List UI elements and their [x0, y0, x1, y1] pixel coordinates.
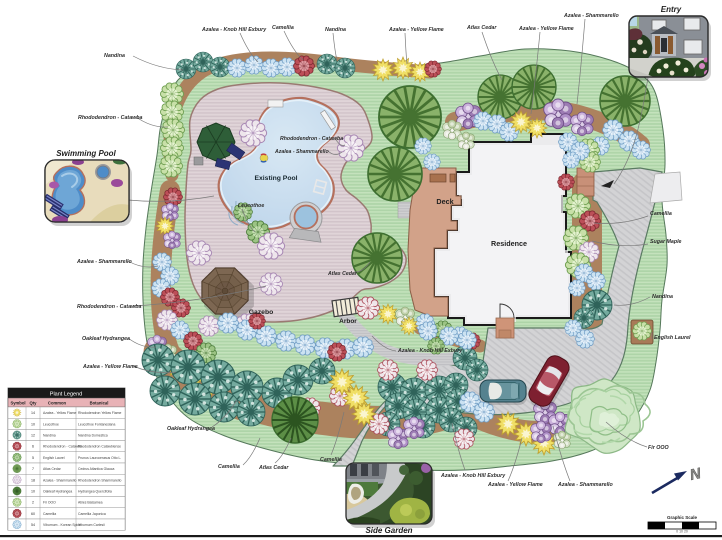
svg-text:Prunus Laurocerasus Otto L.: Prunus Laurocerasus Otto L.: [78, 456, 121, 460]
svg-text:Azalea - Knob Hill Exbury: Azalea - Knob Hill Exbury: [201, 27, 267, 33]
svg-text:5: 5: [32, 456, 34, 460]
svg-text:Leucothoe: Leucothoe: [238, 203, 264, 209]
svg-text:Azalea - Knob Hill Exbury: Azalea - Knob Hill Exbury: [397, 348, 463, 354]
svg-text:Leucothoe Fontanesiana: Leucothoe Fontanesiana: [78, 422, 115, 426]
svg-text:Azalea - Yellow Flame: Azalea - Yellow Flame: [43, 411, 76, 415]
svg-text:Camellia: Camellia: [218, 464, 240, 470]
svg-text:Symbol: Symbol: [10, 401, 25, 406]
svg-text:18: 18: [31, 478, 35, 482]
svg-text:Leucothoe: Leucothoe: [43, 422, 59, 426]
svg-text:Hydrangea Quercifolia: Hydrangea Quercifolia: [78, 490, 112, 494]
svg-text:Graphic Scale: Graphic Scale: [667, 515, 698, 520]
svg-text:7: 7: [32, 467, 34, 471]
svg-text:Cedrus Atlantica Glauca: Cedrus Atlantica Glauca: [78, 467, 114, 471]
svg-text:Atlas Cedar: Atlas Cedar: [258, 465, 289, 471]
svg-text:60: 60: [31, 512, 35, 516]
svg-text:Viburnum Carlesii: Viburnum Carlesii: [78, 523, 105, 527]
svg-text:Abies Balsamea: Abies Balsamea: [78, 501, 103, 505]
svg-text:Plant Legend: Plant Legend: [50, 392, 82, 398]
svg-text:Nandina: Nandina: [104, 53, 125, 59]
svg-text:Azalea - Shammarello: Azalea - Shammarello: [274, 149, 329, 155]
svg-text:Azalea - Yellow Flame: Azalea - Yellow Flame: [518, 26, 574, 32]
svg-text:Camellia: Camellia: [650, 211, 672, 217]
svg-text:0 10 20: 0 10 20: [676, 530, 688, 534]
svg-text:Azalea - Shammarello: Azalea - Shammarello: [76, 259, 133, 265]
svg-text:Oakleaf Hydrangea: Oakleaf Hydrangea: [82, 336, 130, 342]
svg-text:Nandina Domestica: Nandina Domestica: [78, 434, 108, 438]
svg-text:Sugar Maple: Sugar Maple: [650, 239, 682, 245]
svg-text:Rhododendron - Catawba: Rhododendron - Catawba: [77, 304, 141, 310]
svg-text:Azalea - Yellow Flame: Azalea - Yellow Flame: [82, 364, 138, 370]
svg-text:Oakleaf Hydrangea: Oakleaf Hydrangea: [167, 426, 215, 432]
svg-text:Rhododendron - Catawba: Rhododendron - Catawba: [280, 136, 343, 142]
svg-text:Arbor: Arbor: [339, 318, 357, 325]
svg-text:Existing Pool: Existing Pool: [254, 175, 297, 182]
svg-text:Gazebo: Gazebo: [249, 309, 274, 316]
svg-text:Botanical: Botanical: [90, 401, 109, 406]
svg-text:Azalea - Shammarello: Azalea - Shammarello: [43, 478, 76, 482]
svg-text:Rhododendron Yellow Flame: Rhododendron Yellow Flame: [78, 411, 121, 415]
svg-text:Oakleaf Hydrangea: Oakleaf Hydrangea: [43, 490, 72, 494]
svg-text:Rhododendron - Catawba: Rhododendron - Catawba: [78, 115, 142, 121]
svg-text:Camellia: Camellia: [320, 457, 342, 463]
svg-text:Rhododendron - Catawba: Rhododendron - Catawba: [43, 445, 82, 449]
svg-text:Azalea - Shammarello: Azalea - Shammarello: [563, 13, 620, 19]
svg-text:Residence: Residence: [491, 239, 527, 248]
svg-text:Azalea - Shammarello: Azalea - Shammarello: [557, 482, 614, 488]
svg-text:Camellia: Camellia: [272, 25, 294, 31]
svg-text:Atlas Cedar: Atlas Cedar: [43, 467, 62, 471]
svg-text:Atlas Cedar: Atlas Cedar: [327, 271, 358, 277]
svg-text:54: 54: [31, 523, 35, 527]
svg-text:Deck: Deck: [436, 197, 453, 206]
svg-text:12: 12: [31, 434, 35, 438]
svg-text:Atlas Cedar: Atlas Cedar: [466, 25, 497, 31]
svg-text:Azalea - Knob Hill Exbury: Azalea - Knob Hill Exbury: [440, 473, 506, 479]
svg-text:Viburnum - Korean Spice: Viburnum - Korean Spice: [43, 523, 81, 527]
svg-text:Fir OOO: Fir OOO: [43, 501, 56, 505]
svg-text:Entry: Entry: [661, 5, 682, 14]
svg-text:English Laurel: English Laurel: [654, 335, 691, 341]
svg-text:Common: Common: [48, 401, 67, 406]
svg-text:14: 14: [31, 411, 35, 415]
svg-text:10: 10: [31, 490, 35, 494]
svg-text:Azalea - Yellow Flame: Azalea - Yellow Flame: [487, 482, 543, 488]
svg-text:2: 2: [32, 501, 34, 505]
svg-text:English Laurel: English Laurel: [43, 456, 65, 460]
svg-text:Camellia: Camellia: [43, 512, 56, 516]
svg-text:Rhododendron Shammarello: Rhododendron Shammarello: [78, 478, 121, 482]
svg-text:Swimming Pool: Swimming Pool: [56, 149, 116, 158]
svg-text:Nandina: Nandina: [325, 27, 346, 33]
svg-text:Rhododendron Catawbiense: Rhododendron Catawbiense: [78, 445, 121, 449]
svg-text:Nandina: Nandina: [652, 294, 673, 300]
svg-text:Qty: Qty: [30, 401, 38, 406]
svg-text:Azalea - Yellow Flame: Azalea - Yellow Flame: [388, 27, 444, 33]
svg-text:Fir OOO: Fir OOO: [648, 445, 669, 451]
svg-text:Camellia Japonica: Camellia Japonica: [78, 512, 106, 516]
svg-text:10: 10: [31, 422, 35, 426]
svg-text:Nandina: Nandina: [43, 434, 56, 438]
svg-text:6: 6: [32, 445, 34, 449]
svg-text:Side Garden: Side Garden: [365, 526, 412, 535]
